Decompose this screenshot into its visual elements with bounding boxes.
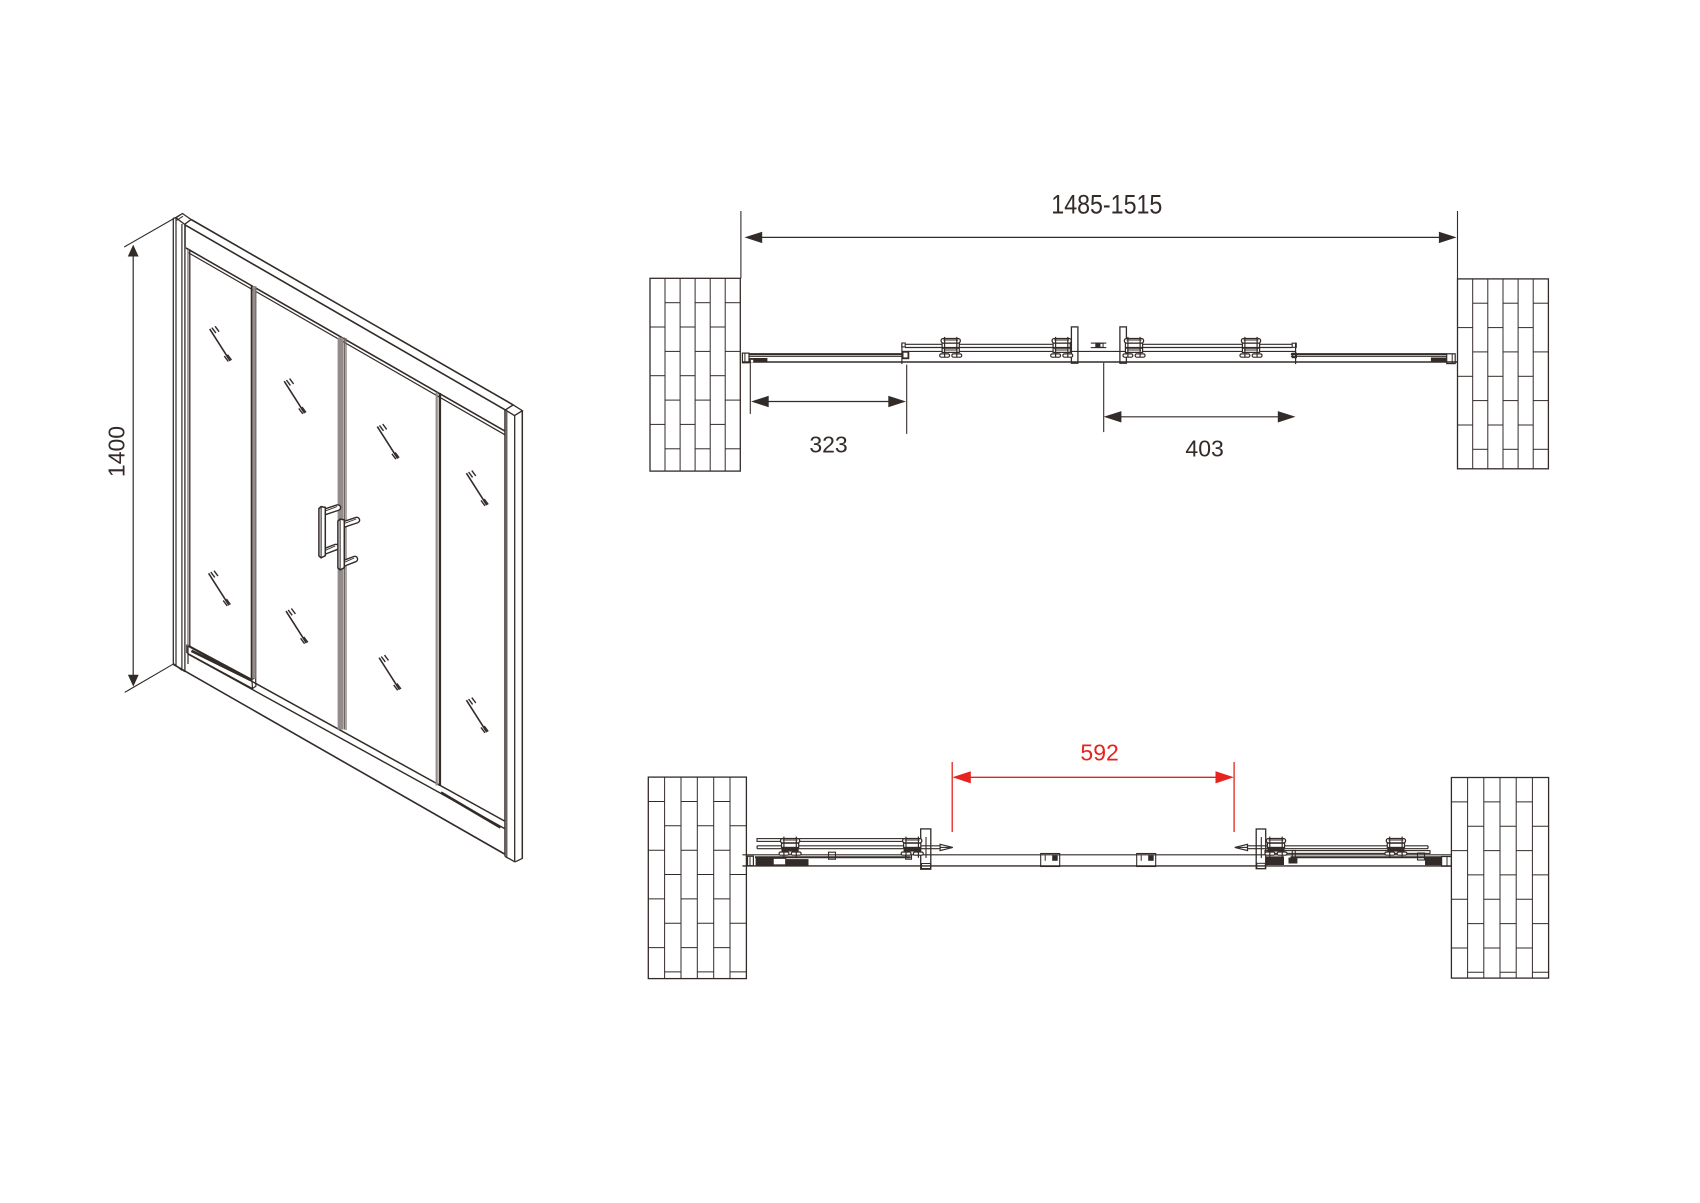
svg-text:1400: 1400 [104, 426, 130, 477]
svg-text:323: 323 [809, 432, 847, 458]
svg-text:403: 403 [1185, 435, 1223, 461]
svg-text:1485-1515: 1485-1515 [1051, 190, 1162, 220]
svg-text:592: 592 [1080, 740, 1118, 766]
